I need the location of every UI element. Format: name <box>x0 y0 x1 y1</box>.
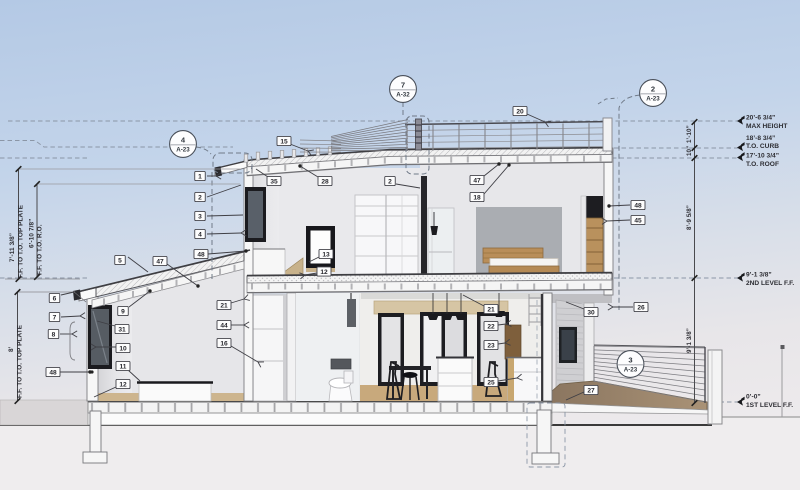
svg-text:1: 1 <box>198 173 202 180</box>
svg-text:7’-11 3/8”: 7’-11 3/8” <box>9 233 16 262</box>
svg-text:18: 18 <box>473 194 481 201</box>
svg-text:30: 30 <box>587 309 595 316</box>
svg-text:21: 21 <box>220 302 228 309</box>
svg-text:MAX HEIGHT: MAX HEIGHT <box>746 123 787 130</box>
svg-text:3: 3 <box>628 356 632 365</box>
svg-text:27: 27 <box>587 387 595 394</box>
svg-text:26: 26 <box>637 304 645 311</box>
svg-text:21: 21 <box>487 306 495 313</box>
svg-text:9’-1 3/8”: 9’-1 3/8” <box>746 272 772 279</box>
svg-text:5: 5 <box>118 257 122 264</box>
svg-text:48: 48 <box>49 369 57 376</box>
svg-text:8’-9 5/8”: 8’-9 5/8” <box>686 205 693 230</box>
svg-text:F.F. TO T.O. TOP PLATE: F.F. TO T.O. TOP PLATE <box>18 204 25 278</box>
svg-text:31: 31 <box>118 326 126 333</box>
svg-text:A-23: A-23 <box>176 146 190 153</box>
svg-text:16: 16 <box>220 340 228 347</box>
svg-text:2ND LEVEL F.F.: 2ND LEVEL F.F. <box>746 280 794 287</box>
svg-text:12: 12 <box>119 381 127 388</box>
svg-text:47: 47 <box>156 258 164 265</box>
svg-text:15: 15 <box>280 138 288 145</box>
svg-text:T.O. ROOF: T.O. ROOF <box>746 161 779 168</box>
svg-text:20: 20 <box>516 108 524 115</box>
svg-text:44: 44 <box>220 322 228 329</box>
svg-text:2: 2 <box>651 85 655 94</box>
svg-text:17’-10 3/4”: 17’-10 3/4” <box>746 153 779 160</box>
svg-text:10: 10 <box>119 345 127 352</box>
svg-text:F.F. TO T.O. TOP PLATE: F.F. TO T.O. TOP PLATE <box>17 324 24 398</box>
svg-text:25: 25 <box>487 379 495 386</box>
svg-text:A-23: A-23 <box>646 95 660 102</box>
svg-text:9: 9 <box>121 308 125 315</box>
svg-text:47: 47 <box>473 177 481 184</box>
svg-text:3: 3 <box>198 213 202 220</box>
svg-text:28: 28 <box>321 178 329 185</box>
svg-text:A-32: A-32 <box>396 91 410 98</box>
svg-text:48: 48 <box>197 251 205 258</box>
svg-text:45: 45 <box>634 217 642 224</box>
svg-text:F.F. TO T.O. R.O.: F.F. TO T.O. R.O. <box>37 224 44 275</box>
svg-text:T.O. CURB: T.O. CURB <box>746 143 779 150</box>
svg-text:23: 23 <box>487 342 495 349</box>
svg-text:6’-10 7/8”: 6’-10 7/8” <box>29 219 36 248</box>
svg-text:9’-1 3/8”: 9’-1 3/8” <box>686 328 693 353</box>
svg-text:2: 2 <box>388 178 392 185</box>
svg-text:7: 7 <box>401 81 405 90</box>
svg-text:4: 4 <box>198 231 202 238</box>
svg-text:11: 11 <box>120 363 127 370</box>
svg-text:35: 35 <box>270 178 278 185</box>
svg-text:20’-6 3/4”: 20’-6 3/4” <box>746 115 775 122</box>
svg-text:6: 6 <box>53 295 57 302</box>
svg-text:A-23: A-23 <box>624 366 638 373</box>
svg-text:22: 22 <box>487 323 495 330</box>
svg-text:2: 2 <box>198 194 202 201</box>
svg-text:10”: 10” <box>686 146 693 156</box>
svg-text:8’: 8’ <box>8 346 15 352</box>
svg-text:7: 7 <box>53 314 57 321</box>
svg-text:18’-8 3/4”: 18’-8 3/4” <box>746 135 775 142</box>
svg-text:13: 13 <box>322 251 330 258</box>
svg-text:48: 48 <box>634 202 642 209</box>
svg-text:1’-10”: 1’-10” <box>686 125 693 143</box>
svg-text:8: 8 <box>52 331 56 338</box>
svg-text:0’-0”: 0’-0” <box>746 394 761 401</box>
svg-text:1ST LEVEL F.F.: 1ST LEVEL F.F. <box>746 402 793 409</box>
svg-text:12: 12 <box>320 269 328 276</box>
